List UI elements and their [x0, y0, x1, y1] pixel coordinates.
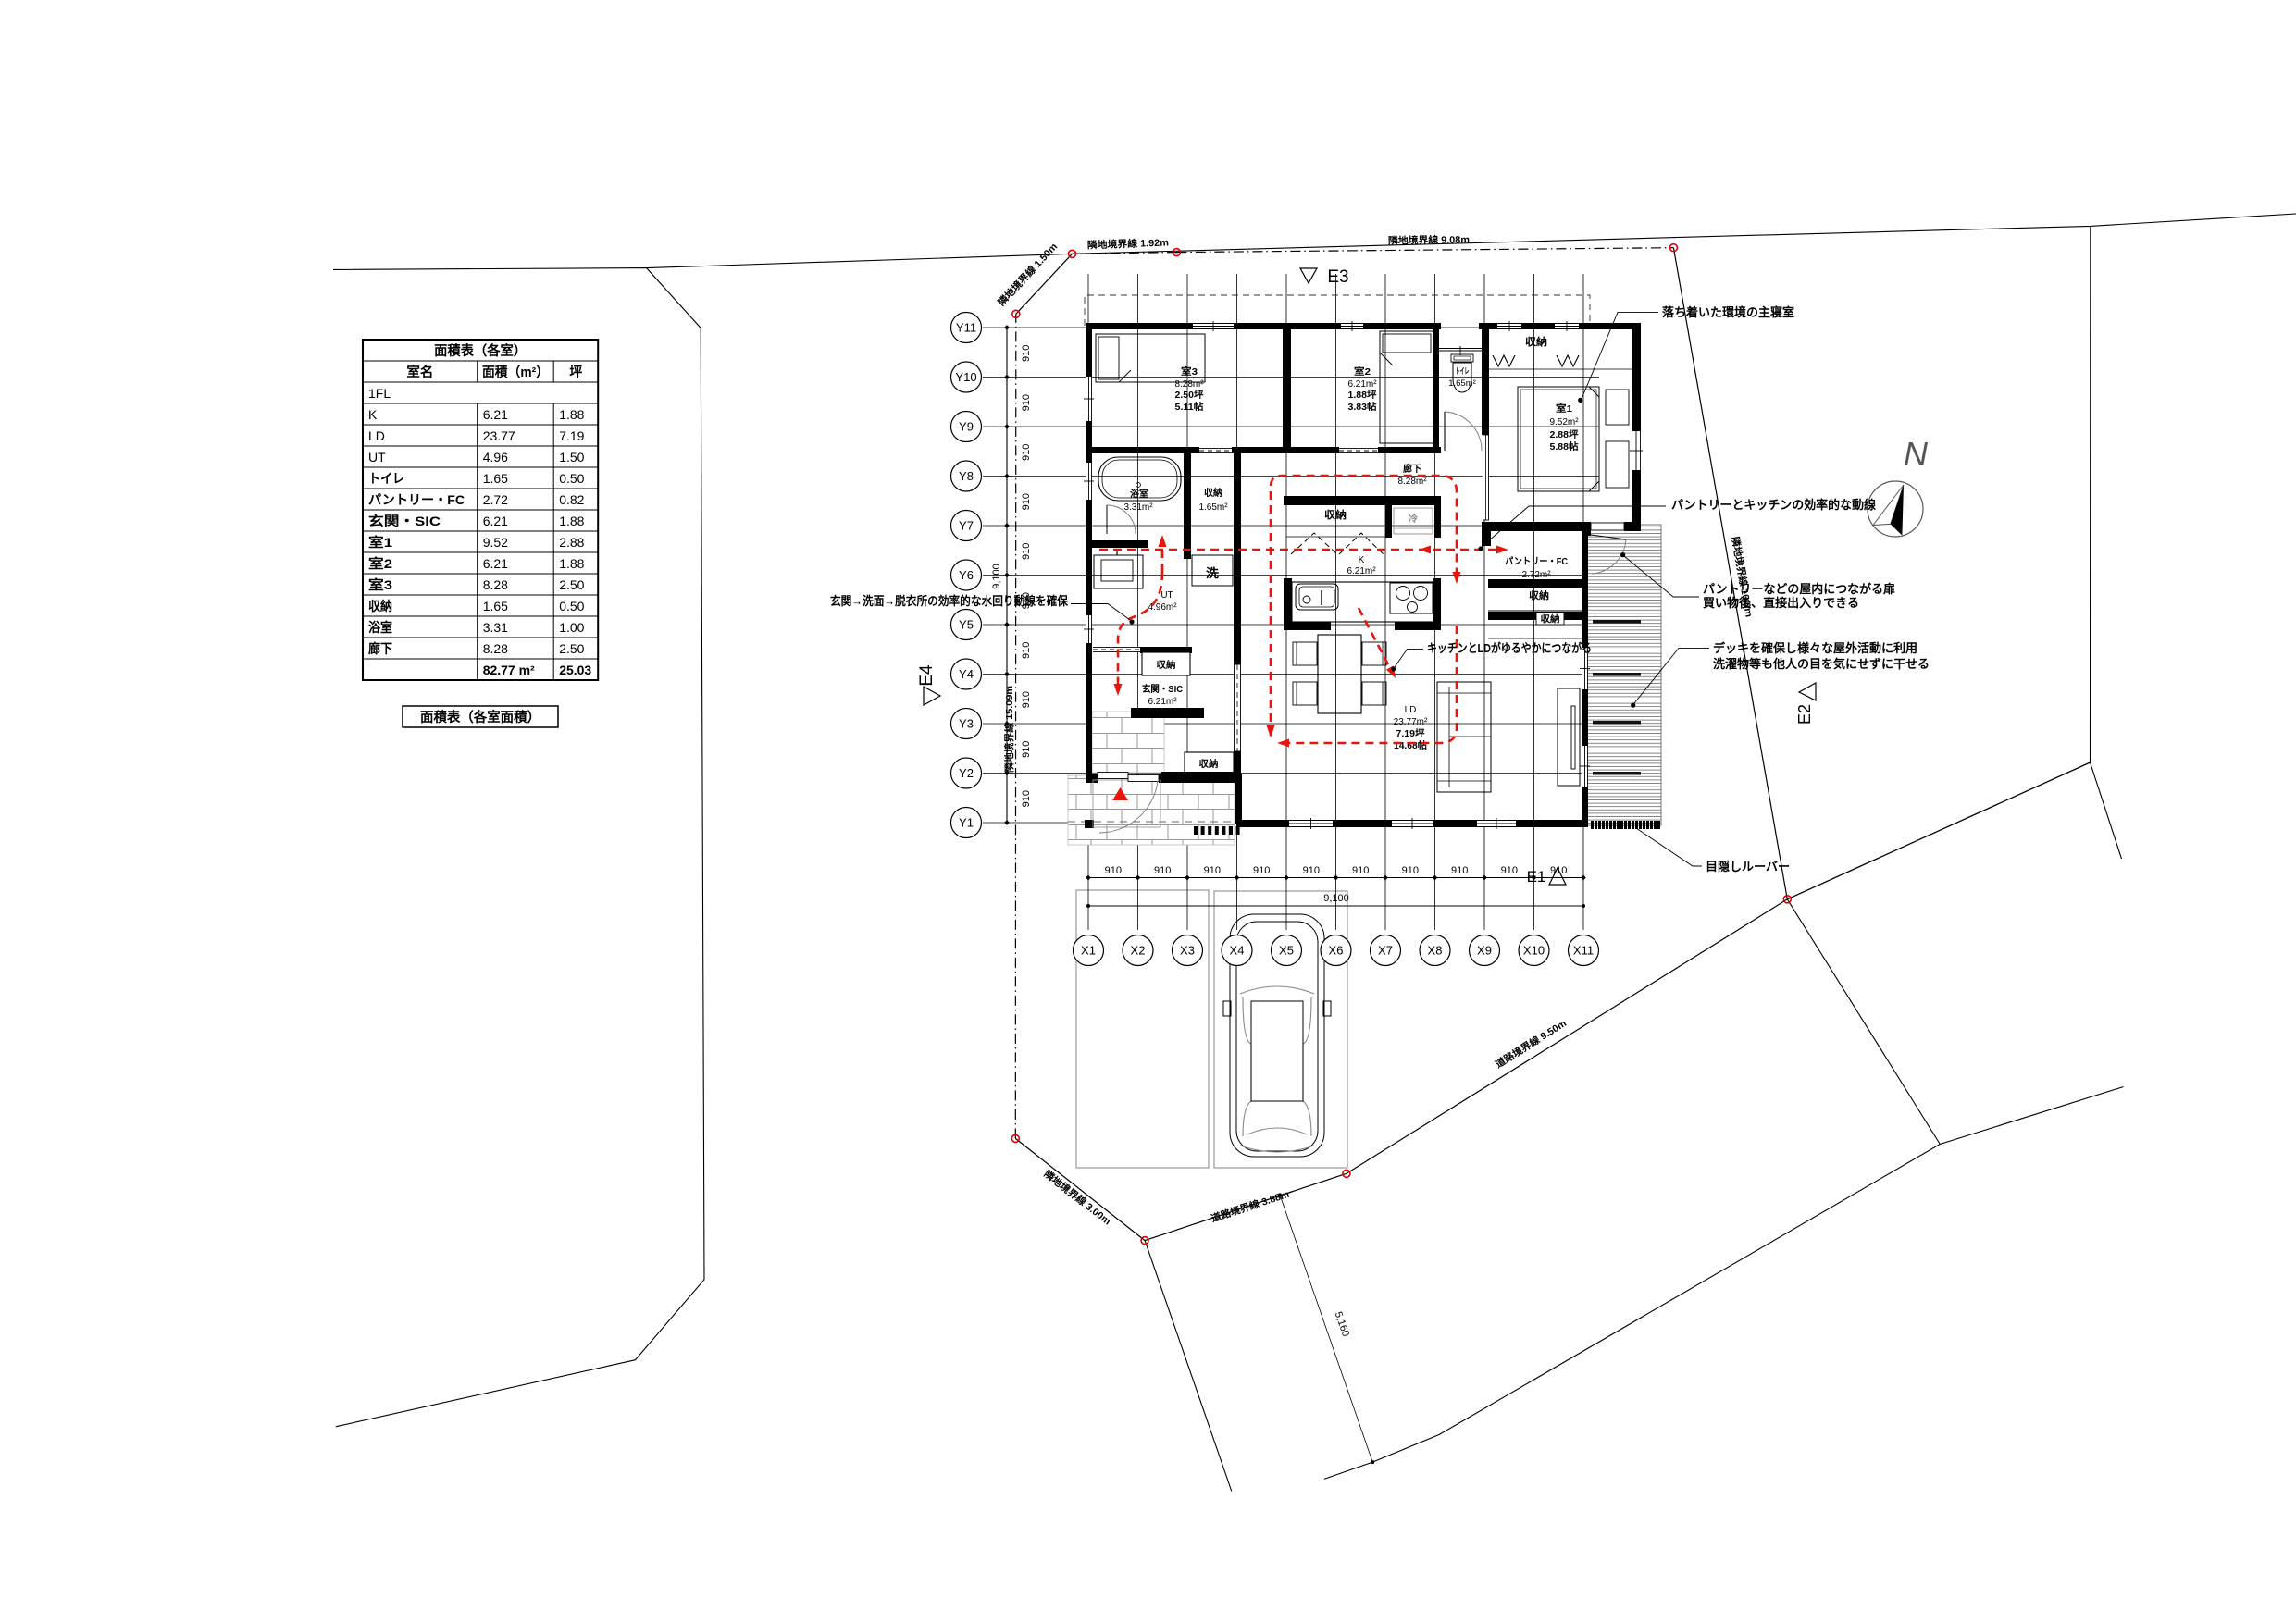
svg-text:Y10: Y10	[955, 370, 976, 384]
svg-text:910: 910	[1021, 444, 1032, 461]
svg-text:1.00: 1.00	[559, 620, 584, 635]
svg-text:浴室: 浴室	[1130, 488, 1148, 500]
svg-text:910: 910	[1501, 865, 1518, 876]
svg-text:910: 910	[1021, 790, 1032, 807]
svg-text:玄関→洗面→脱衣所の効率的な水回り動線を確保: 玄関→洗面→脱衣所の効率的な水回り動線を確保	[830, 594, 1069, 608]
svg-text:910: 910	[1303, 865, 1320, 876]
svg-text:キッチンとLDがゆるやかにつながる: キッチンとLDがゆるやかにつながる	[1427, 641, 1592, 655]
svg-text:5.11帖: 5.11帖	[1175, 401, 1204, 413]
svg-text:1.65: 1.65	[483, 471, 508, 486]
svg-text:82.77 m²: 82.77 m²	[483, 663, 535, 677]
svg-text:1.50: 1.50	[559, 450, 584, 465]
svg-text:目隠しルーバー: 目隠しルーバー	[1706, 860, 1790, 873]
svg-text:室1: 室1	[368, 535, 392, 550]
svg-text:浴室: 浴室	[368, 620, 392, 635]
svg-text:2.50: 2.50	[559, 577, 584, 592]
svg-text:2.88坪: 2.88坪	[1550, 428, 1579, 440]
svg-text:パントリーとキッチンの効率的な動線: パントリーとキッチンの効率的な動線	[1671, 498, 1877, 512]
svg-text:8.28: 8.28	[483, 641, 508, 656]
svg-text:910: 910	[1105, 865, 1122, 876]
svg-text:X9: X9	[1477, 944, 1492, 958]
svg-text:25.03: 25.03	[559, 663, 591, 677]
svg-text:デッキを確保し様々な屋外活動に利用: デッキを確保し様々な屋外活動に利用	[1713, 641, 1917, 655]
svg-text:6.21: 6.21	[483, 514, 508, 528]
svg-text:K: K	[1359, 555, 1365, 565]
svg-text:7.19坪: 7.19坪	[1396, 727, 1425, 739]
svg-text:X11: X11	[1573, 944, 1594, 958]
svg-text:収納: 収納	[1157, 659, 1176, 671]
svg-text:910: 910	[1402, 865, 1419, 876]
svg-text:洗濯物等も他人の目を気にせずに干せる: 洗濯物等も他人の目を気にせずに干せる	[1713, 657, 1930, 671]
svg-text:5.88帖: 5.88帖	[1550, 440, 1579, 452]
svg-text:パントリー・FC: パントリー・FC	[368, 492, 465, 507]
svg-text:E3: E3	[1327, 267, 1348, 287]
svg-text:冷: 冷	[1409, 513, 1418, 525]
svg-text:910: 910	[1451, 865, 1468, 876]
svg-text:収納: 収納	[368, 599, 392, 613]
svg-text:Y11: Y11	[956, 321, 976, 335]
svg-text:910: 910	[1352, 865, 1369, 876]
svg-text:910: 910	[1204, 865, 1221, 876]
svg-text:Y1: Y1	[959, 816, 974, 830]
svg-text:収納: 収納	[1525, 335, 1547, 348]
svg-text:910: 910	[1021, 493, 1032, 510]
svg-text:隣地境界線 9.08m: 隣地境界線 9.08m	[1388, 233, 1470, 247]
svg-text:2.72: 2.72	[483, 492, 508, 507]
svg-text:3.31: 3.31	[483, 620, 508, 635]
svg-text:室1: 室1	[1556, 403, 1573, 415]
svg-text:Y6: Y6	[959, 568, 974, 582]
svg-text:1.65m²: 1.65m²	[1198, 502, 1228, 513]
svg-text:1.65m²: 1.65m²	[1448, 378, 1476, 389]
svg-text:910: 910	[1021, 642, 1032, 659]
svg-text:910: 910	[1253, 865, 1270, 876]
svg-text:2.72m²: 2.72m²	[1521, 570, 1551, 580]
svg-text:8.28m²: 8.28m²	[1174, 379, 1204, 390]
svg-text:隣地境界線 15.09m: 隣地境界線 15.09m	[1003, 686, 1015, 773]
svg-text:X8: X8	[1428, 944, 1443, 958]
svg-text:0.82: 0.82	[559, 492, 584, 507]
svg-text:室3: 室3	[368, 577, 392, 592]
svg-text:Y8: Y8	[959, 469, 974, 483]
svg-text:1.65: 1.65	[483, 599, 508, 613]
svg-text:坪: 坪	[569, 365, 582, 380]
svg-text:1.88: 1.88	[559, 556, 584, 571]
svg-text:X2: X2	[1131, 944, 1146, 958]
svg-text:9,100: 9,100	[1323, 893, 1349, 904]
svg-text:3.31m²: 3.31m²	[1123, 502, 1153, 513]
svg-text:パントリー・FC: パントリー・FC	[1505, 556, 1568, 567]
svg-text:K: K	[368, 407, 378, 422]
svg-text:トイレ: トイレ	[1456, 366, 1470, 376]
svg-text:洗: 洗	[1206, 566, 1219, 580]
svg-text:6.21m²: 6.21m²	[1347, 566, 1376, 576]
svg-text:Y9: Y9	[959, 420, 974, 434]
svg-text:910: 910	[1021, 394, 1032, 411]
svg-text:収納: 収納	[1529, 589, 1549, 601]
svg-text:7.19: 7.19	[559, 428, 584, 443]
svg-text:6.21: 6.21	[483, 556, 508, 571]
svg-text:23.77m²: 23.77m²	[1394, 717, 1428, 727]
svg-text:UT: UT	[368, 450, 386, 465]
svg-text:収納: 収納	[1204, 487, 1222, 499]
svg-text:E4: E4	[917, 664, 937, 687]
svg-text:収納: 収納	[1541, 613, 1560, 626]
svg-text:23.77: 23.77	[483, 428, 515, 443]
svg-text:落ち着いた環境の主寝室: 落ち着いた環境の主寝室	[1662, 305, 1794, 319]
svg-text:Y4: Y4	[959, 667, 974, 681]
svg-text:玄関・SIC: 玄関・SIC	[1142, 683, 1183, 695]
svg-text:面積表（各室面積）: 面積表（各室面積）	[420, 709, 540, 725]
svg-text:E2: E2	[1795, 704, 1814, 725]
svg-text:X5: X5	[1279, 944, 1294, 958]
svg-text:2.50: 2.50	[559, 641, 584, 656]
svg-text:6.21: 6.21	[483, 407, 508, 422]
svg-text:室2: 室2	[1354, 365, 1371, 378]
svg-text:X3: X3	[1180, 944, 1195, 958]
svg-text:X6: X6	[1329, 944, 1344, 958]
svg-text:買い物後、直接出入りできる: 買い物後、直接出入りできる	[1703, 596, 1859, 610]
svg-text:X1: X1	[1081, 944, 1096, 958]
svg-text:2.88: 2.88	[559, 535, 584, 550]
svg-text:廊下: 廊下	[368, 641, 392, 656]
svg-text:収納: 収納	[1324, 508, 1347, 521]
svg-text:UT: UT	[1160, 590, 1173, 601]
svg-text:Y2: Y2	[959, 766, 974, 780]
svg-text:910: 910	[1021, 741, 1032, 758]
svg-text:X7: X7	[1378, 944, 1393, 958]
svg-text:6.21m²: 6.21m²	[1347, 379, 1377, 390]
svg-text:Y5: Y5	[959, 618, 974, 632]
svg-text:面積（m²）: 面積（m²）	[482, 364, 549, 380]
svg-text:廊下: 廊下	[1403, 463, 1421, 475]
svg-text:9.52m²: 9.52m²	[1549, 417, 1579, 427]
svg-text:3.83帖: 3.83帖	[1348, 401, 1377, 413]
svg-text:9,100: 9,100	[991, 564, 1002, 589]
svg-text:8.28: 8.28	[483, 577, 508, 592]
svg-text:収納: 収納	[1199, 758, 1219, 770]
svg-text:4.96: 4.96	[483, 450, 508, 465]
svg-text:面積表（各室）: 面積表（各室）	[434, 342, 527, 359]
svg-text:1FL: 1FL	[368, 386, 391, 401]
svg-text:14.68帖: 14.68帖	[1394, 739, 1427, 751]
svg-text:8.28m²: 8.28m²	[1397, 477, 1427, 487]
svg-text:910: 910	[1021, 543, 1032, 560]
svg-text:室3: 室3	[1181, 365, 1198, 378]
svg-text:E1: E1	[1527, 868, 1546, 886]
svg-text:N: N	[1904, 435, 1929, 473]
svg-text:0.50: 0.50	[559, 471, 584, 486]
svg-text:室名: 室名	[406, 364, 433, 380]
svg-text:トイレ: トイレ	[368, 471, 404, 486]
svg-text:玄関・SIC: 玄関・SIC	[368, 514, 441, 528]
svg-text:910: 910	[1021, 345, 1032, 362]
svg-text:1.88坪: 1.88坪	[1348, 389, 1377, 401]
svg-text:0.50: 0.50	[559, 599, 584, 613]
svg-text:Y3: Y3	[959, 717, 974, 731]
svg-text:910: 910	[1154, 865, 1171, 876]
svg-text:6.21m²: 6.21m²	[1148, 697, 1177, 707]
svg-text:パントリーなどの屋内につながる扉: パントリーなどの屋内につながる扉	[1703, 582, 1895, 596]
svg-text:Y7: Y7	[959, 519, 974, 533]
svg-text:LD: LD	[1405, 705, 1417, 715]
svg-text:室2: 室2	[368, 556, 392, 571]
svg-text:910: 910	[1021, 691, 1032, 708]
svg-text:LD: LD	[368, 428, 385, 443]
svg-text:X10: X10	[1523, 944, 1545, 958]
svg-text:1.88: 1.88	[559, 407, 584, 422]
svg-text:2.50坪: 2.50坪	[1175, 389, 1204, 401]
svg-text:1.88: 1.88	[559, 514, 584, 528]
svg-text:9.52: 9.52	[483, 535, 508, 550]
svg-text:X4: X4	[1230, 944, 1245, 958]
